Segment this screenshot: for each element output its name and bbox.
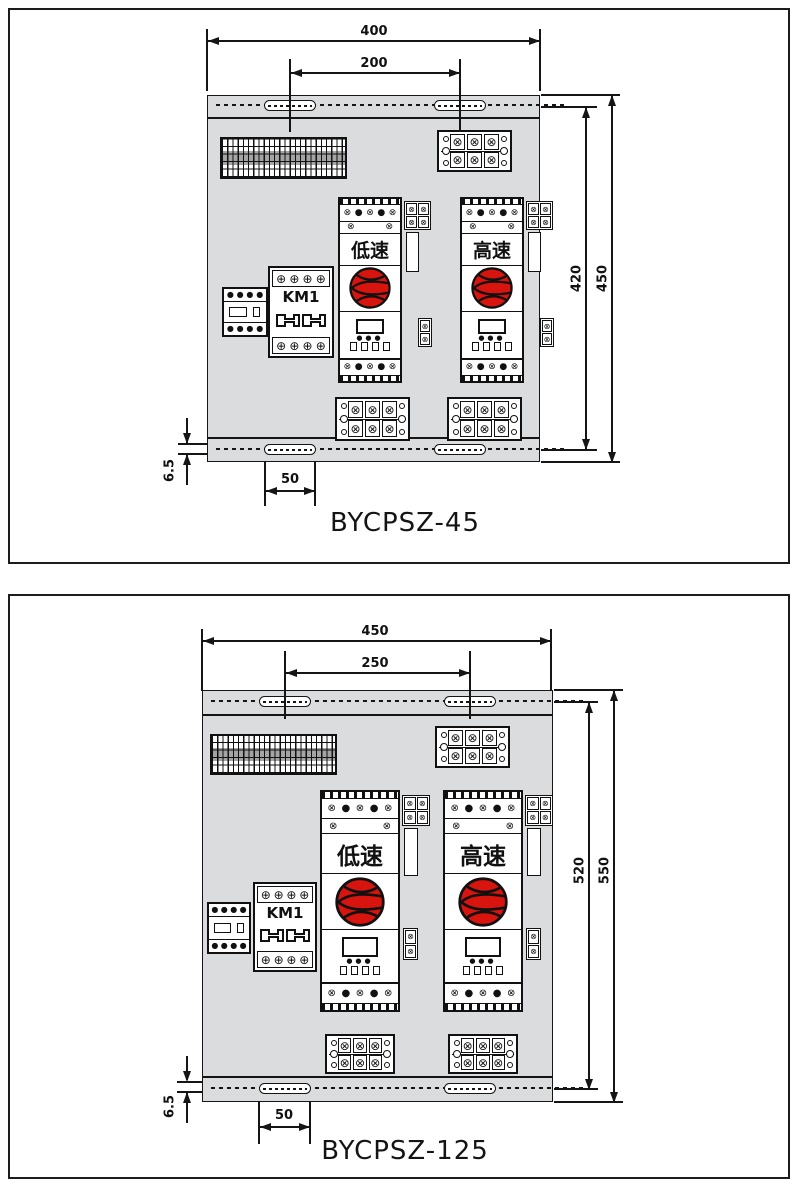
din-clip-teeth	[322, 1003, 398, 1010]
arrowhead	[260, 1123, 271, 1131]
speed-label: 高速	[462, 234, 522, 265]
rotary-knob-icon	[335, 877, 385, 927]
display-dots: ●●●	[346, 957, 373, 965]
arrowhead	[459, 669, 470, 677]
dim-line-overall-width	[202, 640, 551, 642]
rotary-knob-icon	[471, 267, 513, 309]
side-screw-block: ⊗⊗	[526, 928, 541, 960]
terminal-screws: ⊗⊗⊗⊗⊗⊗	[460, 401, 509, 437]
device-screw-strip: ⊗⊗	[322, 819, 398, 834]
speed-label: 低速	[340, 234, 400, 265]
rotary-knob-icon	[349, 267, 391, 309]
terminal-screws: ⊗⊗⊗⊗⊗⊗	[450, 134, 499, 168]
terminal-side-dots	[509, 401, 518, 437]
side-screw-block: ⊗⊗	[403, 928, 418, 960]
terminal-side-dots	[382, 1038, 391, 1070]
arrowhead	[540, 637, 551, 645]
side-screw-block: ⊗⊗	[418, 318, 432, 347]
top-flange-divider	[207, 117, 540, 119]
side-module	[406, 232, 419, 272]
contact-symbol	[276, 314, 300, 327]
contactor-label: KM1	[270, 289, 332, 306]
arrowhead	[608, 452, 616, 463]
dim-label-flange-height: 6.5	[163, 1087, 178, 1127]
display-dots: ●●●	[356, 334, 383, 342]
arrowhead	[585, 702, 593, 713]
device-top-terminals: ⊗●⊗●⊗	[322, 799, 398, 819]
device-screw-strip: ⊗⊗	[340, 222, 400, 235]
terminal-screws: ⊗⊗⊗⊗⊗⊗	[448, 730, 497, 764]
terminal-block: ⊗⊗⊗⊗⊗⊗	[447, 397, 522, 441]
din-clip-teeth	[445, 1003, 521, 1010]
contactor-contacts	[270, 306, 332, 335]
terminal-block: ⊗⊗⊗⊗⊗⊗	[435, 726, 510, 768]
speed-label: 高速	[445, 834, 521, 874]
contactor-bottom-screws: ⊕⊕⊕⊕	[257, 951, 313, 968]
aux-contactor: ●●●● ●●●●	[207, 902, 251, 954]
side-module	[528, 232, 541, 272]
aux-window	[214, 923, 231, 933]
cps-device-high-speed: ⊗●⊗●⊗ ⊗⊗ 高速 ●●● ⊗●⊗●⊗	[443, 790, 523, 1012]
device-top-terminals: ⊗●⊗●⊗	[462, 205, 522, 222]
contactor-bottom-screws: ⊕⊕⊕⊕	[272, 337, 330, 354]
dim-label-overall-width: 450	[335, 624, 415, 639]
device-bottom-terminals: ⊗●⊗●⊗	[340, 359, 400, 376]
contactor-contacts	[255, 922, 315, 949]
device-screw-strip: ⊗⊗	[445, 819, 521, 834]
arrowhead	[299, 1123, 310, 1131]
figure-title: BYCPSZ-125	[290, 1136, 520, 1166]
arrowhead	[529, 37, 540, 45]
aux-button	[253, 307, 260, 317]
terminal-block: ⊗⊗⊗⊗⊗⊗	[437, 130, 512, 172]
display-window	[465, 937, 501, 957]
arrowhead	[291, 69, 302, 77]
top-flange-divider	[202, 714, 553, 716]
terminal-side-dots	[452, 1038, 461, 1070]
side-terminal-block: ⊗⊗⊗⊗	[404, 201, 431, 230]
rotary-knob	[462, 266, 522, 312]
dim-label-hole-spacing: 200	[340, 56, 408, 71]
extension-line	[469, 651, 471, 719]
side-terminal-block: ⊗⊗⊗⊗	[525, 795, 553, 826]
side-module	[527, 828, 541, 876]
indicator-squares	[472, 342, 512, 351]
rotary-knob	[445, 874, 521, 930]
arrowhead	[183, 1071, 191, 1082]
arrowhead	[266, 487, 277, 495]
aux-top-dots: ●●●●	[209, 904, 249, 917]
dim-line-overall-width	[207, 40, 540, 42]
side-terminal-block: ⊗⊗⊗⊗	[526, 201, 553, 230]
dim-label-slot-length: 50	[258, 1108, 310, 1123]
extension-line	[284, 651, 286, 719]
side-module	[404, 828, 418, 876]
contactor-top-screws: ⊕⊕⊕⊕	[257, 886, 313, 903]
terminal-side-dots	[505, 1038, 514, 1070]
arrowhead	[585, 1079, 593, 1090]
arrowhead	[203, 637, 214, 645]
mounting-slot	[434, 444, 486, 455]
terminal-side-dots	[441, 134, 450, 168]
cps-device-high-speed: ⊗●⊗●⊗ ⊗⊗ 高速 ●●● ⊗●⊗●⊗	[460, 197, 524, 383]
dim-label-overall-height: 450	[596, 259, 611, 299]
dim-label-slot-length: 50	[265, 472, 315, 487]
terminal-side-dots	[451, 401, 460, 437]
dim-line-hole-spacing	[285, 672, 470, 674]
din-clip-teeth	[322, 792, 398, 799]
aux-bottom-dots: ●●●●	[209, 939, 249, 952]
terminal-block: ⊗⊗⊗⊗⊗⊗	[335, 397, 410, 441]
dim-line-overall-height	[611, 94, 613, 463]
terminal-side-dots	[497, 730, 506, 764]
display-dots: ●●●	[478, 334, 505, 342]
arrowhead	[304, 487, 315, 495]
dim-label-hole-spacing: 250	[335, 656, 415, 671]
contactor-top-screws: ⊕⊕⊕⊕	[272, 270, 330, 287]
aux-middle	[224, 302, 266, 322]
bottom-flange-divider	[202, 1076, 553, 1078]
dim-label-overall-width: 400	[340, 24, 408, 39]
contactor-km1: ⊕⊕⊕⊕ KM1 ⊕⊕⊕⊕	[268, 266, 334, 358]
dim-line-hole-spacing	[290, 72, 460, 74]
indicator-squares	[463, 966, 503, 975]
dim-label-inner-height: 520	[573, 851, 588, 891]
din-clip-teeth	[445, 792, 521, 799]
contact-symbol	[286, 929, 310, 942]
indicator-squares	[340, 966, 380, 975]
device-bottom-terminals: ⊗●⊗●⊗	[462, 359, 522, 376]
arrowhead	[608, 95, 616, 106]
device-top-terminals: ⊗●⊗●⊗	[445, 799, 521, 819]
arrowhead	[449, 69, 460, 77]
device-screw-strip: ⊗⊗	[462, 222, 522, 235]
arrowhead	[286, 669, 297, 677]
arrowhead	[582, 439, 590, 450]
terminal-side-dots	[339, 401, 348, 437]
aux-window	[229, 307, 247, 317]
dim-label-flange-height: 6.5	[163, 451, 178, 491]
terminal-side-dots	[329, 1038, 338, 1070]
din-clip-teeth	[340, 375, 400, 381]
cps-device-low-speed: ⊗●⊗●⊗ ⊗⊗ 低速 ●●● ⊗●⊗●⊗	[320, 790, 400, 1012]
din-terminal-strip	[220, 137, 347, 179]
cps-device-low-speed: ⊗●⊗●⊗ ⊗⊗ 低速 ●●● ⊗●⊗●⊗	[338, 197, 402, 383]
mounting-slot	[259, 1083, 311, 1094]
display-window	[356, 319, 384, 334]
arrowhead	[208, 37, 219, 45]
rotary-knob	[340, 266, 400, 312]
dim-line-overall-height	[613, 689, 615, 1103]
terminal-screws: ⊗⊗⊗⊗⊗⊗	[461, 1038, 505, 1070]
contactor-km1: ⊕⊕⊕⊕ KM1 ⊕⊕⊕⊕	[253, 882, 317, 972]
dim-label-inner-height: 420	[570, 259, 585, 299]
aux-contactor: ●●●● ●●●●	[222, 287, 268, 337]
display-window	[342, 937, 378, 957]
rotary-knob-icon	[458, 877, 508, 927]
mounting-slot	[264, 444, 316, 455]
terminal-block: ⊗⊗⊗⊗⊗⊗	[325, 1034, 395, 1074]
speed-label: 低速	[322, 834, 398, 874]
side-terminal-block: ⊗⊗⊗⊗	[402, 795, 430, 826]
indicator-squares	[350, 342, 390, 351]
device-top-terminals: ⊗●⊗●⊗	[340, 205, 400, 222]
dim-label-overall-height: 550	[598, 851, 613, 891]
aux-button	[237, 923, 244, 933]
arrowhead	[582, 107, 590, 118]
dim-line-inner-height	[588, 701, 590, 1090]
device-display-section: ●●●	[340, 312, 400, 359]
device-bottom-terminals: ⊗●⊗●⊗	[322, 983, 398, 1003]
device-display-section: ●●●	[462, 312, 522, 359]
device-display-section: ●●●	[445, 930, 521, 983]
mounting-slot	[444, 1083, 496, 1094]
display-dots: ●●●	[469, 957, 496, 965]
dim-line-inner-height	[585, 106, 587, 450]
side-screw-block: ⊗⊗	[540, 318, 554, 347]
figure-title: BYCPSZ-45	[300, 508, 510, 538]
contact-symbol	[260, 929, 284, 942]
terminal-block: ⊗⊗⊗⊗⊗⊗	[448, 1034, 518, 1074]
terminal-screws: ⊗⊗⊗⊗⊗⊗	[348, 401, 397, 437]
arrowhead	[183, 1092, 191, 1103]
terminal-side-dots	[499, 134, 508, 168]
aux-middle	[209, 917, 249, 939]
aux-top-dots: ●●●●	[224, 289, 266, 302]
terminal-screws: ⊗⊗⊗⊗⊗⊗	[338, 1038, 382, 1070]
contact-symbol	[302, 314, 326, 327]
aux-bottom-dots: ●●●●	[224, 322, 266, 335]
arrowhead	[183, 433, 191, 444]
terminal-side-dots	[397, 401, 406, 437]
arrowhead	[183, 454, 191, 465]
display-window	[478, 319, 506, 334]
terminal-side-dots	[439, 730, 448, 764]
device-bottom-terminals: ⊗●⊗●⊗	[445, 983, 521, 1003]
arrowhead	[610, 690, 618, 701]
contactor-label: KM1	[255, 905, 315, 922]
rotary-knob	[322, 874, 398, 930]
arrowhead	[610, 1092, 618, 1103]
din-clip-teeth	[462, 375, 522, 381]
device-display-section: ●●●	[322, 930, 398, 983]
din-terminal-strip	[210, 734, 337, 775]
